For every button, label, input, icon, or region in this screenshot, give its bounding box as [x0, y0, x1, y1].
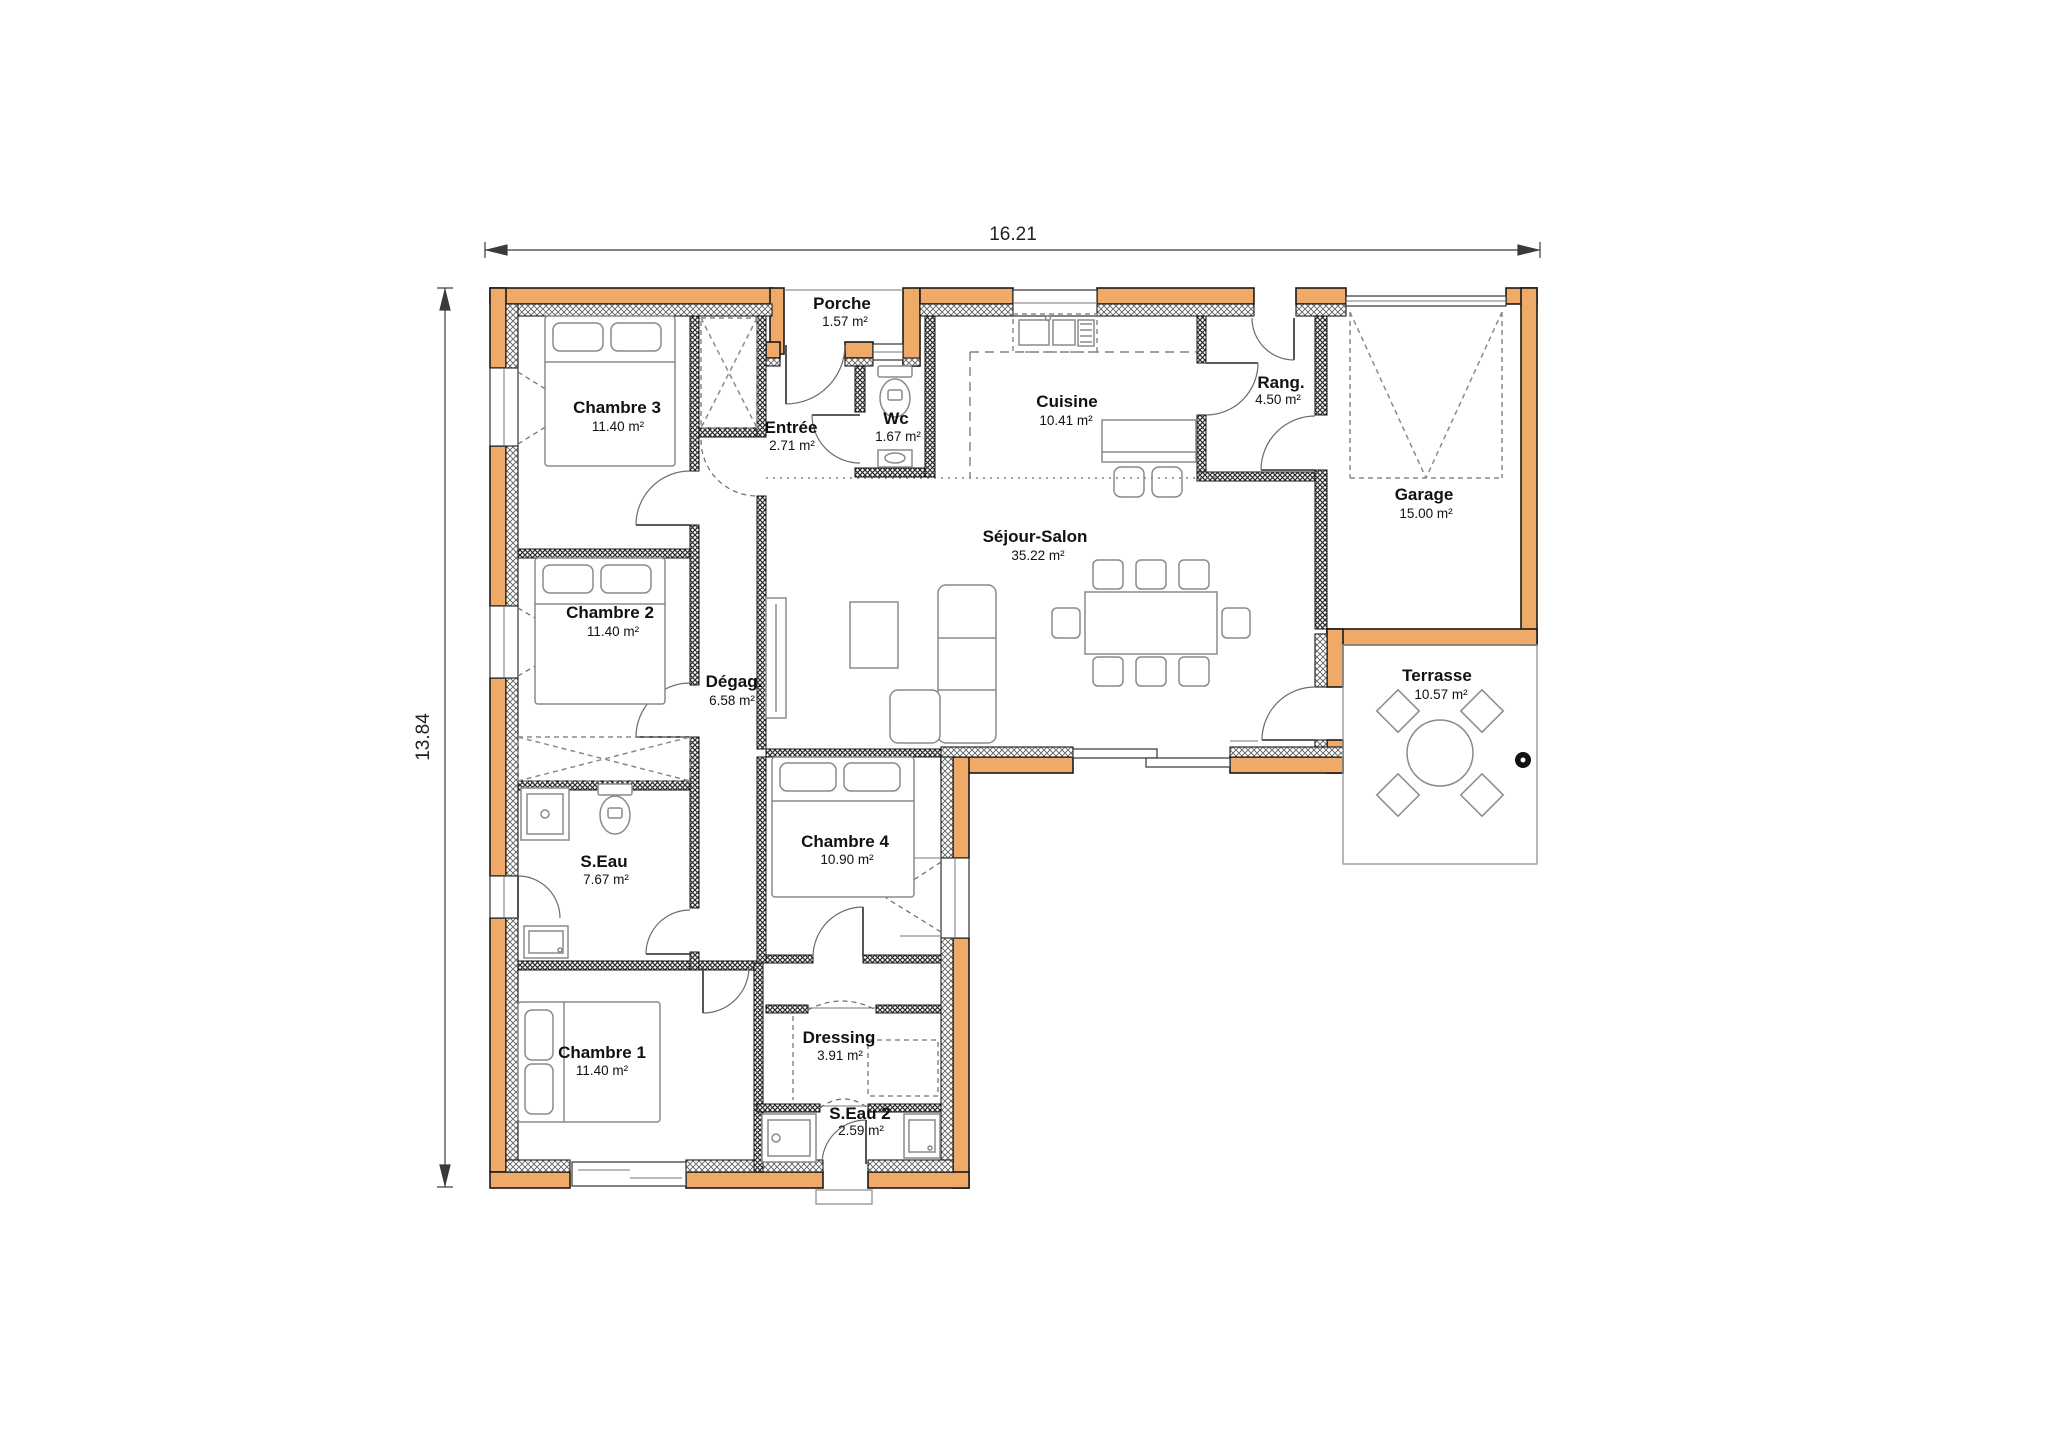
- kitchen-island-part: [1114, 467, 1144, 497]
- room-label-degag: Dégag.6.58 m²: [706, 672, 763, 708]
- window-seau: [490, 876, 560, 918]
- interior-walls-part: [757, 757, 766, 963]
- exterior-walls-orange-part: [490, 288, 772, 304]
- toilet-seau-part: [600, 796, 630, 834]
- room-label-seau-2: S.Eau 22.59 m²: [829, 1104, 890, 1138]
- door-terrasse-part: [1262, 687, 1316, 740]
- room-label-cuisine-part: 10.41 m²: [1039, 413, 1093, 428]
- window-porche: [873, 344, 903, 360]
- door-wc-part: [812, 415, 860, 463]
- coffee-table-sejour-part: [850, 602, 898, 668]
- interior-walls-part: [518, 961, 762, 970]
- interior-walls-part: [518, 549, 690, 558]
- room-label-chambre-3-part: Chambre 3: [573, 398, 661, 417]
- room-label-porche: Porche1.57 m²: [813, 294, 871, 329]
- exterior-walls-hatch-part: [506, 1160, 570, 1172]
- interior-walls-part: [690, 525, 699, 685]
- room-label-dressing-part: 3.91 m²: [817, 1048, 863, 1063]
- dining-table-sejour-part: [1179, 657, 1209, 686]
- bed-chambre4-part: [844, 763, 900, 791]
- dining-table-sejour-part: [1052, 608, 1080, 638]
- kitchen-counter-part: [1046, 316, 1051, 321]
- room-label-dressing-part: Dressing: [803, 1028, 876, 1047]
- dimension-width: 16.21: [485, 224, 1540, 258]
- shower-seau: [521, 788, 569, 840]
- bed-chambre4: [772, 757, 914, 897]
- exterior-walls-hatch-part: [903, 358, 920, 366]
- exterior-walls-orange-part: [953, 938, 969, 1188]
- door-chambre1-part: [703, 967, 749, 1013]
- door-rang-exterior: [1252, 318, 1294, 360]
- interior-walls-part: [766, 749, 941, 757]
- room-label-chambre-1-part: Chambre 1: [558, 1043, 646, 1062]
- interior-walls-part: [766, 955, 813, 963]
- exterior-walls-hatch-part: [1296, 304, 1346, 316]
- room-label-cuisine: Cuisine10.41 m²: [1036, 392, 1097, 428]
- bed-chambre3: [545, 316, 675, 466]
- wardrobe-placard: [518, 737, 690, 781]
- bed-chambre2-part: [543, 565, 593, 593]
- interior-walls-part: [1197, 472, 1327, 481]
- room-label-seau-2-part: 2.59 m²: [838, 1123, 884, 1138]
- sofa-sejour-part: [890, 690, 940, 743]
- exterior-walls-hatch-part: [506, 304, 772, 316]
- toilet-seau-part: [598, 784, 632, 795]
- archway-degag: [701, 440, 757, 496]
- terrasse-table: [1377, 690, 1503, 816]
- kitchen-island-part: [1152, 467, 1182, 497]
- door-entree: [786, 345, 845, 404]
- exterior-walls-hatch-part: [941, 747, 1073, 757]
- room-label-entree-part: Entrée: [765, 418, 818, 437]
- interior-walls-part: [1197, 316, 1206, 363]
- interior-walls-part: [690, 737, 699, 908]
- exterior-walls-orange-part: [1521, 288, 1537, 645]
- exterior-walls-orange-part: [686, 1172, 823, 1188]
- room-label-sejour-salon-part: Séjour-Salon: [983, 527, 1088, 546]
- interior-walls-part: [863, 955, 941, 963]
- vanity-seau: [524, 926, 568, 958]
- wardrobe-dressing-part: [868, 1040, 938, 1096]
- exterior-walls-orange-part: [903, 288, 920, 366]
- door-terrasse: [1262, 687, 1316, 740]
- dimension-height-label: 13.84: [413, 713, 434, 761]
- dimension-width-part: [1518, 245, 1538, 255]
- dimension-height: 13.84: [413, 288, 453, 1187]
- bed-chambre3-part: [611, 323, 661, 351]
- bed-chambre3-part: [553, 323, 603, 351]
- dining-table-sejour-part: [1179, 560, 1209, 589]
- exterior-walls-orange-part: [868, 1172, 969, 1188]
- exterior-walls-orange-part: [490, 918, 506, 1172]
- dining-table-sejour-part: [1085, 592, 1217, 654]
- room-label-rang-part: 4.50 m²: [1255, 392, 1301, 407]
- terrasse-table-part: [1377, 774, 1419, 816]
- door-rang-garage-part: [1261, 416, 1315, 470]
- room-label-chambre-2-part: 11.40 m²: [587, 624, 640, 639]
- terrasse-table-part: [1377, 690, 1419, 732]
- bed-chambre1-part: [525, 1064, 553, 1114]
- door-chambre4: [813, 907, 863, 957]
- tv-console-sejour: [766, 598, 786, 718]
- interior-walls-part: [699, 428, 757, 437]
- kitchen-island: [1102, 420, 1196, 497]
- dining-table-sejour-part: [1222, 608, 1250, 638]
- room-label-porche-part: 1.57 m²: [822, 314, 868, 329]
- archway-degag-part: [701, 440, 757, 496]
- interior-walls-part: [757, 496, 766, 749]
- dining-table-sejour-part: [1093, 560, 1123, 589]
- dimension-height-part: [440, 1165, 450, 1185]
- terrasse-table-part: [1407, 720, 1473, 786]
- exterior-walls-hatch-part: [1230, 747, 1343, 757]
- exterior-walls-orange-part: [490, 288, 506, 368]
- exterior-walls-orange-part: [1327, 629, 1343, 687]
- sofa-sejour: [890, 585, 996, 743]
- bed-chambre4-part: [780, 763, 836, 791]
- door-chambre3-part: [636, 471, 690, 525]
- exterior-walls-orange-part: [1327, 629, 1537, 645]
- room-label-wc-part: 1.67 m²: [875, 429, 921, 444]
- bed-chambre1-part: [525, 1010, 553, 1060]
- exterior-walls-hatch-part: [506, 304, 518, 368]
- window-seau-part: [518, 876, 560, 918]
- vanity-seau2: [904, 1114, 940, 1158]
- interior-walls-part: [690, 952, 699, 970]
- interior-walls-part: [1315, 470, 1327, 629]
- window-chambre1-part: [572, 1162, 686, 1186]
- room-label-entree: Entrée2.71 m²: [765, 418, 818, 453]
- sliding-door-dressing: [808, 1001, 876, 1010]
- dining-table-sejour-part: [1136, 560, 1166, 589]
- room-label-seau-2-part: S.Eau 2: [829, 1104, 890, 1123]
- room-label-wc: Wc1.67 m²: [875, 409, 921, 444]
- room-label-seau-part: 7.67 m²: [583, 872, 629, 887]
- closet-chambre3-part: [701, 318, 757, 428]
- shower-seau-part: [521, 788, 569, 840]
- window-cuisine: [1013, 290, 1097, 316]
- exterior-walls-orange-part: [845, 342, 873, 358]
- basin-wc: [878, 450, 912, 467]
- room-label-terrasse-part: Terrasse: [1402, 666, 1472, 685]
- exterior-walls-hatch-part: [920, 304, 1013, 316]
- interior-walls-part: [876, 1005, 941, 1013]
- door-wc: [812, 415, 860, 463]
- room-label-porche-part: Porche: [813, 294, 871, 313]
- terrasse-table-part: [1461, 774, 1503, 816]
- door-chambre4-part: [813, 907, 863, 957]
- room-label-chambre-3-part: 11.40 m²: [592, 419, 645, 434]
- door-rang-garage: [1261, 416, 1315, 470]
- toilet-wc-part: [878, 366, 912, 377]
- window-chambre1: [572, 1162, 686, 1186]
- exterior-walls-hatch-part: [845, 358, 873, 366]
- dining-table-sejour: [1052, 560, 1250, 686]
- toilet-seau: [598, 784, 632, 834]
- room-label-dressing: Dressing3.91 m²: [803, 1028, 876, 1063]
- exterior-walls-hatch-part: [506, 918, 518, 1160]
- interior-walls-part: [690, 316, 699, 471]
- room-label-garage-part: 15.00 m²: [1399, 506, 1453, 521]
- garage-door: [1346, 296, 1506, 306]
- exterior-walls-orange-part: [920, 288, 1013, 304]
- room-label-degag-part: Dégag.: [706, 672, 763, 691]
- wardrobe-placard-part: [518, 737, 690, 781]
- room-label-chambre-4-part: 10.90 m²: [820, 852, 874, 867]
- room-label-rang-part: Rang.: [1257, 373, 1304, 392]
- dimension-width-label: 16.21: [989, 224, 1037, 245]
- room-label-chambre-4-part: Chambre 4: [801, 832, 889, 851]
- shower-seau2-part: [762, 1114, 816, 1162]
- bed-chambre2-part: [601, 565, 651, 593]
- exterior-walls-hatch-part: [941, 938, 953, 1172]
- door-entree-part: [786, 345, 845, 404]
- dimension-height-part: [440, 290, 450, 310]
- door-rang-exterior-part: [1252, 318, 1294, 360]
- exterior-walls-hatch-part: [1097, 304, 1254, 316]
- door-seau-part: [646, 910, 690, 954]
- coffee-table-sejour: [850, 602, 898, 668]
- wardrobe-placard-part: [518, 737, 690, 781]
- interior-walls-part: [855, 468, 935, 477]
- room-label-wc-part: Wc: [883, 409, 909, 428]
- dimension-width-part: [487, 245, 507, 255]
- dining-table-sejour-part: [1136, 657, 1166, 686]
- exterior-walls-orange-part: [1296, 288, 1346, 304]
- room-label-garage-part: Garage: [1395, 485, 1454, 504]
- interior-walls-part: [925, 316, 935, 477]
- kitchen-counter-part: [1080, 324, 1092, 342]
- terrasse-pillar-part: [1521, 758, 1526, 763]
- room-label-sejour-salon-part: 35.22 m²: [1011, 548, 1065, 563]
- kitchen-counter: [1013, 314, 1097, 352]
- exterior-walls-hatch-part: [941, 757, 953, 858]
- interior-walls-part: [766, 1005, 808, 1013]
- sofa-sejour-part: [938, 585, 996, 743]
- exterior-walls-orange-part: [490, 446, 506, 606]
- room-label-cuisine-part: Cuisine: [1036, 392, 1097, 411]
- room-label-chambre-2-part: Chambre 2: [566, 603, 654, 622]
- dining-table-sejour-part: [1093, 657, 1123, 686]
- terrasse-pillar: [1515, 752, 1531, 768]
- room-label-terrasse-part: 10.57 m²: [1414, 687, 1468, 702]
- door-seau: [646, 910, 690, 954]
- kitchen-island-part: [1102, 420, 1196, 462]
- room-label-degag-part: 6.58 m²: [709, 693, 755, 708]
- door-seau2-exterior-part: [816, 1190, 872, 1204]
- garage-door-swing-part: [1350, 312, 1502, 478]
- door-chambre3: [636, 471, 690, 525]
- exterior-walls-orange-part: [1097, 288, 1254, 304]
- interior-walls-part: [1315, 316, 1327, 415]
- bed-chambre1: [518, 1002, 660, 1122]
- kitchen-counter-part: [1053, 320, 1075, 345]
- room-label-garage: Garage15.00 m²: [1395, 485, 1454, 521]
- interior-walls-part: [1197, 415, 1206, 472]
- room-label-rang: Rang.4.50 m²: [1255, 373, 1305, 407]
- garage-door-swing: [1350, 312, 1502, 478]
- exterior-walls-hatch-part: [868, 1160, 953, 1172]
- door-rang-cuisine-part: [1206, 363, 1258, 415]
- exterior-walls-hatch-part: [1315, 634, 1327, 687]
- door-chambre1: [703, 967, 749, 1013]
- room-label-seau: S.Eau7.67 m²: [580, 852, 629, 887]
- exterior-walls-orange-part: [490, 678, 506, 876]
- exterior-walls-hatch-part: [766, 358, 780, 366]
- exterior-walls-orange-part: [1230, 757, 1343, 773]
- room-label-entree-part: 2.71 m²: [769, 438, 815, 453]
- sliding-door-dressing-part: [808, 1001, 876, 1010]
- door-rang-cuisine: [1206, 363, 1258, 415]
- sliding-bay-sejour-part: [1146, 758, 1230, 767]
- exterior-walls-hatch-part: [506, 446, 518, 606]
- exterior-walls-hatch-part: [506, 678, 518, 876]
- floor-plan-canvas: 16.21 13.84: [0, 0, 2048, 1447]
- exterior-walls-orange-part: [490, 1172, 570, 1188]
- exterior-walls-orange-part: [766, 342, 780, 358]
- sliding-bay-sejour-part: [1073, 749, 1157, 758]
- interior-walls-part: [757, 1104, 820, 1112]
- room-label-sejour-salon: Séjour-Salon35.22 m²: [983, 527, 1088, 563]
- room-label-terrasse: Terrasse10.57 m²: [1402, 666, 1472, 702]
- room-label-chambre-1-part: 11.40 m²: [576, 1063, 629, 1078]
- exterior-walls-orange-part: [953, 757, 969, 858]
- kitchen-counter-part: [1019, 320, 1049, 345]
- closet-chambre3: [701, 318, 757, 428]
- shower-seau2: [762, 1114, 816, 1162]
- room-label-seau-part: S.Eau: [580, 852, 627, 871]
- interior-walls-part: [855, 366, 865, 412]
